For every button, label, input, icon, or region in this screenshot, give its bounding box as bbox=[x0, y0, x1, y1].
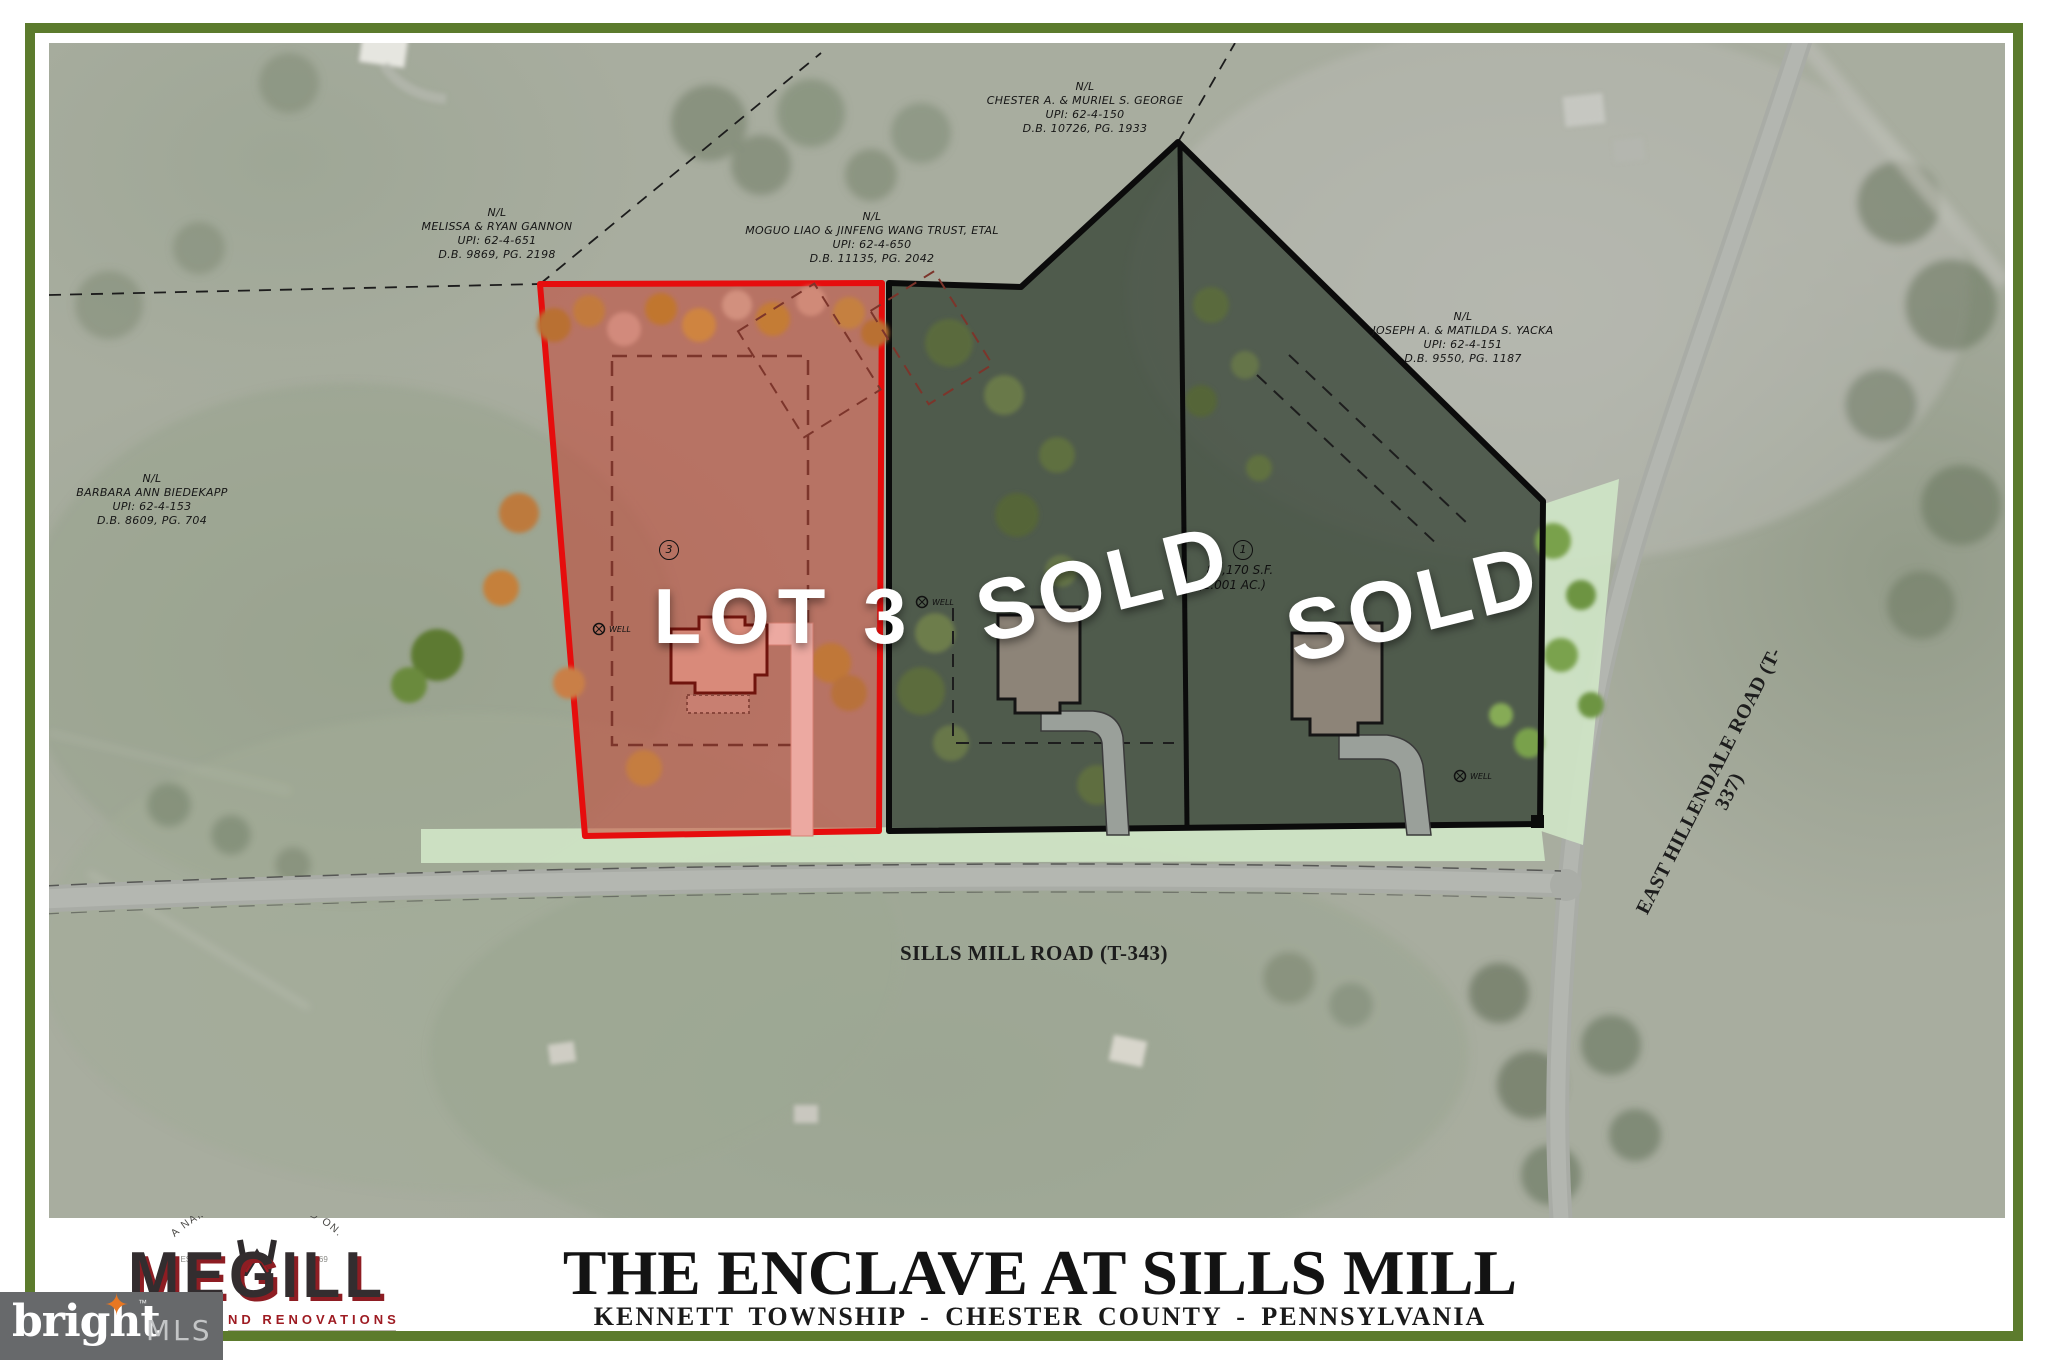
parcel-upi: UPI: 62-4-153 bbox=[49, 500, 272, 514]
parcel-label-george: N/L CHESTER A. & MURIEL S. GEORGE UPI: 6… bbox=[955, 80, 1215, 136]
parcel-upi: UPI: 62-4-150 bbox=[955, 108, 1215, 122]
svg-text:A NAME YOU CAN BUILD ON.: A NAME YOU CAN BUILD ON. bbox=[169, 1216, 346, 1239]
parcel-upi: UPI: 62-4-650 bbox=[712, 238, 1032, 252]
parcel-upi: UPI: 62-4-651 bbox=[367, 234, 627, 248]
logo-tagline: ND RENOVATIONS bbox=[228, 1312, 402, 1327]
mls-wordmark: MLS bbox=[146, 1314, 213, 1347]
parcel-label-liao: N/L MOGUO LIAO & JINFENG WANG TRUST, ETA… bbox=[712, 210, 1032, 266]
trademark-symbol: ™ bbox=[138, 1298, 147, 1308]
flyer-title: THE ENCLAVE AT SILLS MILL bbox=[550, 1236, 1529, 1310]
parcel-owner: BARBARA ANN BIEDEKAPP bbox=[49, 486, 272, 500]
parcel-deed: D.B. 11135, PG. 2042 bbox=[712, 252, 1032, 266]
svg-text:WELL: WELL bbox=[609, 625, 631, 634]
parcel-deed: D.B. 8609, PG. 704 bbox=[49, 514, 272, 528]
parcel-owner: MELISSA & RYAN GANNON bbox=[367, 220, 627, 234]
road-label-sills-mill: SILLS MILL ROAD (T-343) bbox=[889, 941, 1179, 966]
logo-rule bbox=[228, 1330, 396, 1332]
lot3-number-marker: 3 bbox=[659, 540, 679, 560]
star-icon: ✦ bbox=[104, 1288, 129, 1323]
parcel-owner: JOSEPH A. & MATILDA S. YACKA bbox=[1333, 324, 1593, 338]
bright-mls-watermark: bright ✦ ™ MLS bbox=[0, 1292, 223, 1360]
parcel-nl: N/L bbox=[49, 472, 272, 486]
lot3-label: LOT 3 bbox=[639, 571, 929, 662]
parcel-label-biedekapp: N/L BARBARA ANN BIEDEKAPP UPI: 62-4-153 … bbox=[49, 472, 272, 528]
flyer-page: WELL WELL WELL N/L MELISSA & RYAN GANNON… bbox=[0, 0, 2048, 1365]
parcel-deed: D.B. 9550, PG. 1187 bbox=[1333, 352, 1593, 366]
parcel-nl: N/L bbox=[1333, 310, 1593, 324]
parcel-owner: CHESTER A. & MURIEL S. GEORGE bbox=[955, 94, 1215, 108]
parcel-deed: D.B. 9869, PG. 2198 bbox=[367, 248, 627, 262]
site-plan-map: WELL WELL WELL N/L MELISSA & RYAN GANNON… bbox=[49, 43, 2005, 1218]
svg-text:WELL: WELL bbox=[932, 598, 954, 607]
parcel-deed: D.B. 10726, PG. 1933 bbox=[955, 122, 1215, 136]
parcel-owner: MOGUO LIAO & JINFENG WANG TRUST, ETAL bbox=[712, 224, 1032, 238]
svg-text:WELL: WELL bbox=[1470, 772, 1492, 781]
parcel-nl: N/L bbox=[712, 210, 1032, 224]
logo-arc-text: A NAME YOU CAN BUILD ON. bbox=[169, 1216, 346, 1239]
flyer-subtitle: KENNETT TOWNSHIP - CHESTER COUNTY - PENN… bbox=[560, 1302, 1520, 1332]
parcel-label-yacka: N/L JOSEPH A. & MATILDA S. YACKA UPI: 62… bbox=[1333, 310, 1593, 366]
parcel-nl: N/L bbox=[955, 80, 1215, 94]
parcel-nl: N/L bbox=[367, 206, 627, 220]
parcel-upi: UPI: 62-4-151 bbox=[1333, 338, 1593, 352]
parcel-label-gannon: N/L MELISSA & RYAN GANNON UPI: 62-4-651 … bbox=[367, 206, 627, 262]
